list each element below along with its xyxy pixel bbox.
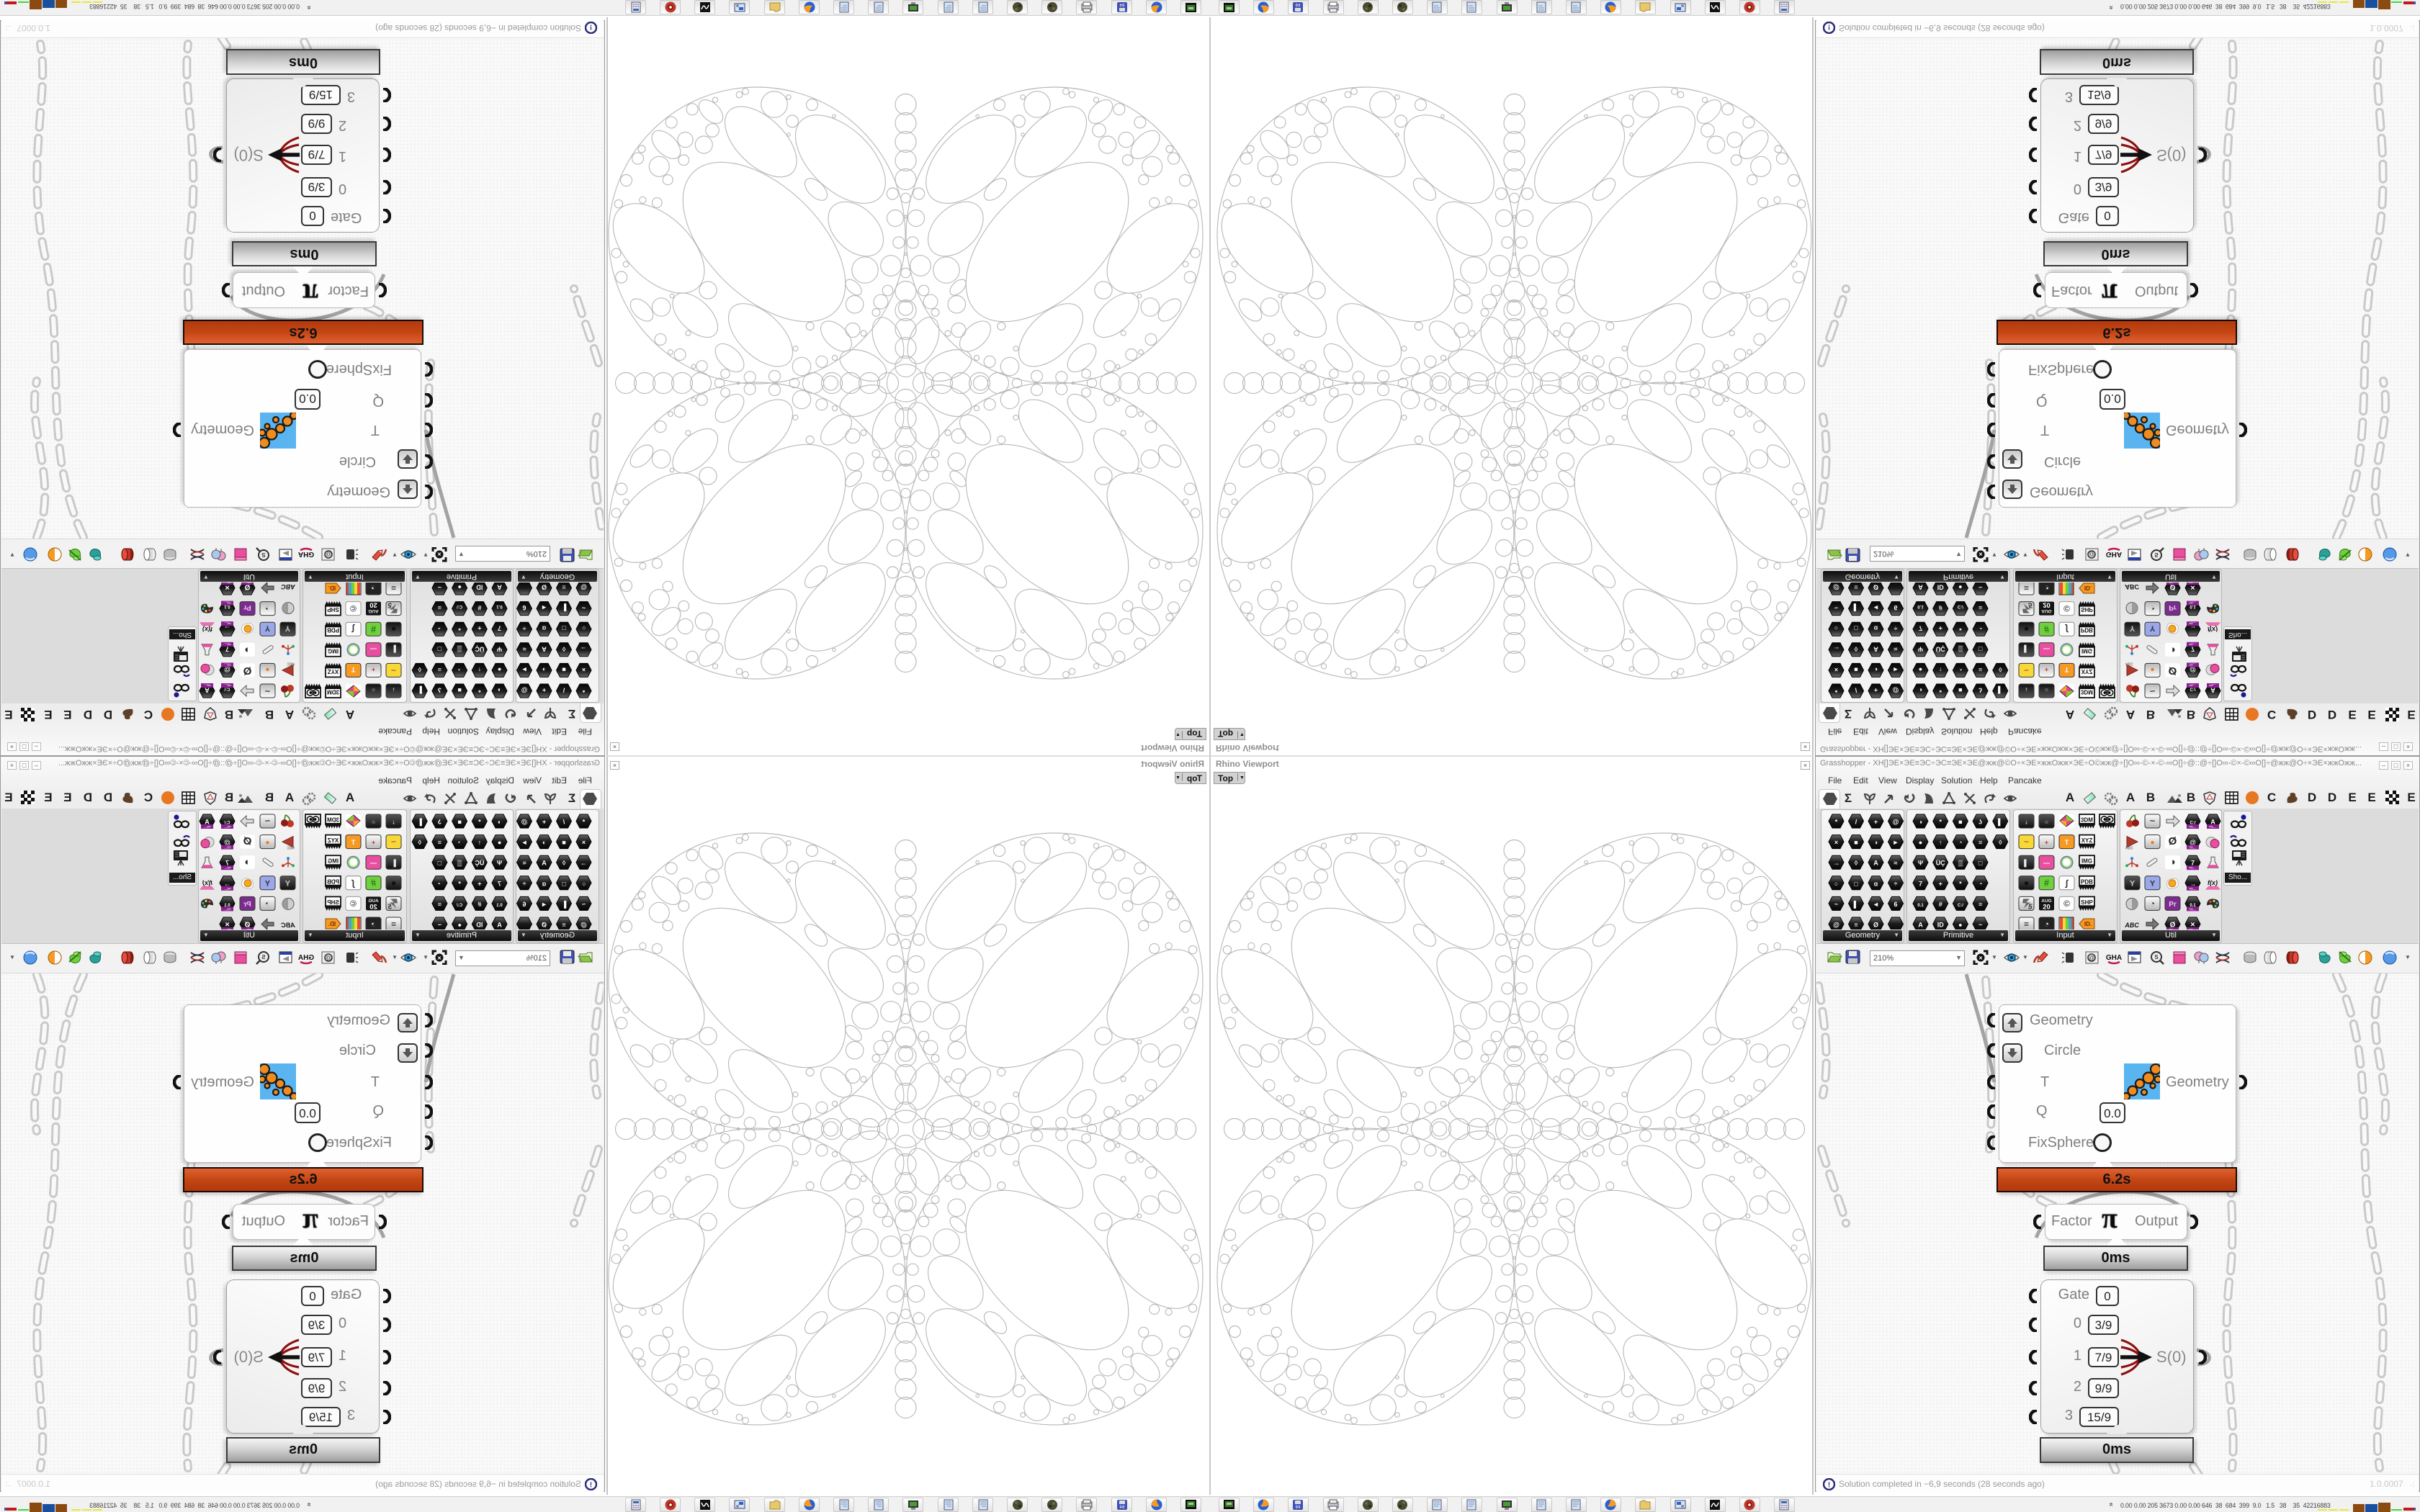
- svg-text:A: A: [1873, 860, 1878, 867]
- svg-text:□: □: [1854, 625, 1858, 632]
- svg-text:GHA: GHA: [2106, 550, 2122, 558]
- svg-text:0.1: 0.1: [1917, 904, 1924, 908]
- svg-text:Ø: Ø: [243, 835, 251, 847]
- svg-text:Ψ: Ψ: [497, 645, 502, 652]
- svg-text:3DM: 3DM: [2081, 817, 2093, 824]
- svg-text:▌: ▌: [391, 644, 395, 653]
- svg-text:=x...: =x...: [244, 928, 251, 930]
- svg-text:—: —: [370, 645, 377, 652]
- svg-text:◑: ◑: [1919, 819, 1922, 826]
- svg-text:~: ~: [1978, 584, 1982, 591]
- svg-text:◄: ◄: [1873, 604, 1879, 611]
- svg-text:~: ~: [2024, 665, 2029, 675]
- svg-text:PDB: PDB: [327, 627, 339, 634]
- svg-text:▌: ▌: [2024, 859, 2028, 868]
- svg-text:÷: ÷: [522, 880, 526, 887]
- svg-text:64: 64: [1296, 2, 1301, 6]
- svg-text:=x...: =x...: [2189, 621, 2196, 625]
- svg-text:◑: ◑: [244, 856, 250, 868]
- svg-text:Y: Y: [264, 879, 270, 888]
- svg-text:©: ©: [350, 603, 357, 613]
- svg-text:#: #: [2044, 624, 2050, 635]
- svg-text:*: *: [478, 687, 481, 694]
- svg-text:Ø: Ø: [542, 922, 547, 929]
- svg-text:~: ~: [391, 837, 396, 847]
- svg-text:ʖ: ʖ: [438, 687, 442, 694]
- svg-text:5: 5: [2028, 903, 2033, 911]
- svg-text:=x...: =x...: [224, 621, 231, 625]
- svg-text:T: T: [2065, 839, 2069, 846]
- svg-text:S: S: [2154, 954, 2159, 960]
- svg-text:Pr: Pr: [243, 901, 251, 909]
- svg-text:□: □: [1978, 860, 1983, 867]
- svg-text:►: ►: [521, 666, 528, 673]
- svg-text:6: 6: [522, 604, 526, 611]
- svg-text:A: A: [1918, 584, 1923, 591]
- svg-text:≡: ≡: [562, 922, 565, 929]
- svg-text:SHP: SHP: [327, 606, 339, 613]
- svg-text:→: →: [581, 645, 587, 652]
- svg-text:◔: ◔: [457, 839, 461, 846]
- svg-text:○: ○: [582, 625, 586, 632]
- svg-text:●: ●: [498, 839, 501, 846]
- svg-text:!: !: [1828, 23, 1830, 31]
- svg-text:C:/: C:/: [1958, 604, 1963, 608]
- svg-text:=x...: =x...: [224, 907, 231, 912]
- svg-text:■: ■: [2045, 687, 2048, 694]
- svg-text:@: @: [1893, 687, 1899, 694]
- svg-text:◔: ◔: [371, 583, 376, 593]
- svg-text:■: ■: [1854, 666, 1857, 673]
- svg-text:PDB: PDB: [327, 878, 339, 885]
- svg-text:ÜÇ: ÜÇ: [475, 645, 484, 652]
- svg-text:◑: ◑: [2169, 856, 2175, 868]
- svg-text:0.1: 0.1: [496, 604, 503, 608]
- svg-text:@: @: [326, 955, 331, 961]
- svg-text:Y: Y: [284, 879, 290, 888]
- svg-text:~: ~: [264, 686, 270, 697]
- svg-text:=x...: =x...: [2189, 825, 2196, 829]
- svg-text:+: +: [542, 687, 546, 694]
- svg-text:f(x): f(x): [2208, 626, 2218, 633]
- svg-text:▌: ▌: [2024, 644, 2028, 653]
- svg-text:Y: Y: [2130, 879, 2136, 888]
- svg-text:=x...: =x...: [2169, 582, 2176, 584]
- svg-text:►: ►: [521, 839, 528, 846]
- svg-text:×: ×: [1834, 839, 1838, 846]
- svg-text:≈: ≈: [522, 860, 526, 867]
- svg-text:□: □: [437, 645, 442, 652]
- svg-text:@: @: [2089, 955, 2094, 961]
- svg-text:→: →: [224, 625, 230, 632]
- svg-text:Ø: Ø: [1873, 584, 1878, 591]
- svg-text:0.1: 0.1: [1917, 604, 1924, 608]
- svg-text:IMG: IMG: [2081, 647, 2092, 654]
- svg-text:ɑ: ɑ: [1874, 880, 1878, 887]
- svg-text:≡: ≡: [391, 919, 396, 930]
- svg-text:~: ~: [1834, 901, 1838, 908]
- svg-text:Ø: Ø: [243, 665, 251, 677]
- svg-text:*: *: [582, 819, 585, 826]
- svg-text:=x...: =x...: [224, 642, 231, 646]
- svg-text:@: @: [224, 666, 230, 673]
- svg-text:=x...: =x...: [224, 825, 231, 829]
- svg-text:/: /: [563, 819, 565, 826]
- svg-text:7: 7: [1919, 625, 1922, 632]
- svg-text:64: 64: [1296, 1506, 1301, 1510]
- svg-text:=x...: =x...: [224, 662, 231, 666]
- svg-text:T: T: [351, 839, 355, 846]
- svg-text:▒: ▒: [1958, 860, 1963, 868]
- svg-text:◔: ◔: [265, 899, 270, 909]
- svg-text:~: ~: [582, 604, 586, 611]
- svg-text:◄: ◄: [1873, 901, 1879, 908]
- svg-text:□: □: [1854, 880, 1858, 887]
- svg-text:Pr: Pr: [243, 603, 251, 611]
- svg-text:Y: Y: [2150, 624, 2156, 633]
- svg-text:ɑ: ɑ: [542, 625, 547, 632]
- svg-text:#: #: [1939, 604, 1942, 611]
- svg-text:+: +: [2045, 839, 2048, 846]
- svg-text:●: ●: [1919, 666, 1922, 673]
- svg-text:≡: ≡: [438, 901, 442, 908]
- svg-text:PDB: PDB: [2081, 627, 2093, 634]
- svg-text:◔: ◔: [2044, 919, 2049, 930]
- svg-text:*: *: [1959, 625, 1962, 632]
- svg-text:©: ©: [2063, 603, 2070, 613]
- svg-text:■: ■: [562, 839, 565, 846]
- svg-text:=x...: =x...: [244, 582, 251, 584]
- svg-text:×: ×: [582, 666, 586, 673]
- svg-text:@: @: [1833, 922, 1839, 929]
- svg-text:64: 64: [1119, 1506, 1124, 1510]
- svg-text:●: ●: [457, 922, 461, 929]
- svg-text:◑: ◑: [2169, 644, 2175, 656]
- svg-text:©: ©: [2063, 899, 2070, 909]
- svg-text:◑: ◑: [498, 819, 501, 826]
- svg-text:@: @: [224, 839, 230, 846]
- svg-text:ID: ID: [1937, 584, 1945, 591]
- svg-text:@: @: [581, 584, 587, 591]
- svg-text:=x...: =x...: [204, 683, 211, 687]
- svg-text:~: ~: [582, 901, 586, 908]
- svg-text:—: —: [2043, 860, 2050, 867]
- svg-text:=x...: =x...: [2189, 582, 2196, 584]
- svg-text:~: ~: [1834, 604, 1838, 611]
- svg-text:■: ■: [562, 666, 565, 673]
- svg-text:×: ×: [437, 551, 441, 558]
- svg-text:≈: ≈: [1894, 645, 1898, 652]
- svg-text:◊: ◊: [562, 645, 565, 652]
- svg-text:5: 5: [2028, 601, 2033, 609]
- svg-text:#: #: [370, 877, 376, 888]
- svg-text:≈: ≈: [1894, 860, 1898, 867]
- svg-text:#: #: [370, 624, 376, 635]
- svg-text:◔: ◔: [2150, 603, 2155, 613]
- svg-text:▌: ▌: [418, 686, 422, 695]
- svg-text:+: +: [372, 839, 375, 846]
- svg-text:+: +: [1939, 880, 1942, 887]
- svg-text:~: ~: [438, 922, 442, 929]
- svg-text:▒: ▒: [1958, 644, 1963, 652]
- svg-text:+: +: [1874, 819, 1878, 826]
- svg-text:■: ■: [372, 687, 375, 694]
- svg-text:◑: ◑: [498, 687, 501, 694]
- svg-text:0.1: 0.1: [496, 904, 503, 908]
- svg-text:ɑ: ɑ: [542, 880, 547, 887]
- svg-text:=x...: =x...: [2189, 642, 2196, 646]
- svg-text:SHP: SHP: [2081, 606, 2093, 613]
- svg-text:~: ~: [2024, 837, 2029, 847]
- svg-text:↓: ↓: [392, 687, 395, 694]
- svg-text:=x...: =x...: [2189, 846, 2196, 850]
- svg-text:~: ~: [438, 584, 442, 591]
- svg-text:Y: Y: [2150, 879, 2156, 888]
- svg-text:▌: ▌: [1854, 900, 1858, 909]
- svg-text:→: →: [2190, 625, 2196, 632]
- svg-text:~: ~: [2150, 686, 2156, 697]
- svg-text:T: T: [2065, 666, 2069, 673]
- svg-text:6: 6: [522, 901, 526, 908]
- svg-text:Ψ: Ψ: [1918, 645, 1923, 652]
- svg-text:6: 6: [1894, 901, 1897, 908]
- svg-text:→: →: [1833, 645, 1839, 652]
- svg-text:=x...: =x...: [2209, 683, 2216, 687]
- svg-text:Σ: Σ: [1845, 707, 1852, 721]
- svg-text:Ø: Ø: [2169, 665, 2177, 677]
- svg-text:Pr: Pr: [2169, 901, 2177, 909]
- svg-text:↑: ↑: [478, 666, 482, 673]
- svg-text:=x...: =x...: [2189, 866, 2196, 870]
- svg-text:S: S: [261, 954, 266, 960]
- svg-text:S: S: [2154, 552, 2159, 558]
- svg-text:ABC: ABC: [2124, 583, 2139, 590]
- svg-text:◔: ◔: [438, 625, 442, 632]
- svg-text:◔: ◔: [2044, 583, 2049, 593]
- svg-text:T: T: [351, 666, 355, 673]
- svg-text:▌: ▌: [1854, 603, 1858, 612]
- svg-text:+: +: [372, 666, 375, 673]
- svg-text:●: ●: [1958, 922, 1962, 929]
- svg-text:●: ●: [1919, 839, 1922, 846]
- svg-text:7: 7: [498, 625, 501, 632]
- svg-text:*: *: [1835, 687, 1838, 694]
- svg-text:■: ■: [1958, 687, 1962, 694]
- svg-text:■: ■: [1854, 839, 1857, 846]
- svg-text:@: @: [2089, 551, 2094, 557]
- svg-text:3DM: 3DM: [327, 817, 339, 824]
- svg-text:5: 5: [387, 601, 392, 609]
- svg-text:◄: ◄: [541, 901, 547, 908]
- svg-text:C:/: C:/: [1958, 904, 1963, 908]
- svg-text:▌: ▌: [391, 859, 395, 868]
- svg-text:ABC: ABC: [281, 922, 296, 929]
- svg-text:▌: ▌: [1998, 818, 2002, 827]
- svg-text:/: /: [563, 687, 565, 694]
- svg-text:≡: ≡: [391, 583, 396, 593]
- svg-text:≡: ≡: [562, 584, 565, 591]
- svg-text:=x...: =x...: [2189, 928, 2196, 930]
- svg-text:÷: ÷: [522, 625, 526, 632]
- svg-text:=x...: =x...: [204, 825, 211, 829]
- svg-text:≈: ≈: [522, 645, 526, 652]
- svg-text:■: ■: [457, 687, 461, 694]
- svg-text:◔: ◔: [371, 919, 376, 930]
- svg-text:f(x): f(x): [202, 626, 212, 633]
- svg-text:A: A: [1918, 922, 1923, 929]
- svg-text:□: □: [562, 625, 566, 632]
- svg-text:7: 7: [225, 860, 229, 867]
- svg-text:○: ○: [1834, 880, 1838, 887]
- svg-text:≡: ≡: [1978, 666, 1982, 673]
- svg-text:S: S: [261, 552, 266, 558]
- svg-text:20: 20: [369, 601, 377, 609]
- svg-text:ABC: ABC: [2124, 922, 2139, 929]
- svg-text:=x...: =x...: [2189, 907, 2196, 912]
- svg-text:IMG: IMG: [328, 858, 339, 865]
- svg-text:ID: ID: [476, 584, 483, 591]
- svg-text:ʖ: ʖ: [1978, 819, 1982, 826]
- svg-text:↑: ↑: [1939, 839, 1942, 846]
- svg-text:●: ●: [2024, 877, 2030, 888]
- svg-text:20: 20: [2043, 601, 2051, 609]
- svg-text:▌: ▌: [1998, 686, 2002, 695]
- svg-text:~: ~: [391, 665, 396, 675]
- svg-text:*: *: [458, 880, 461, 887]
- svg-text:ÜÇ: ÜÇ: [1936, 860, 1945, 867]
- svg-text:◔: ◔: [2150, 899, 2155, 909]
- svg-text:20: 20: [2043, 903, 2051, 911]
- svg-text:A: A: [497, 922, 502, 929]
- svg-text:=x...: =x...: [2189, 683, 2196, 687]
- svg-text:≡: ≡: [438, 666, 442, 673]
- svg-text:+: +: [478, 625, 481, 632]
- svg-text:*: *: [458, 625, 461, 632]
- svg-text:+: +: [1939, 625, 1942, 632]
- svg-text:ʖ: ʖ: [438, 819, 442, 826]
- svg-text:@: @: [1893, 819, 1899, 826]
- svg-text:+: +: [542, 819, 546, 826]
- svg-text:◔: ◔: [1978, 880, 1982, 887]
- svg-text:#: #: [478, 901, 481, 908]
- svg-text:■: ■: [457, 819, 461, 826]
- svg-text:◑: ◑: [244, 644, 250, 656]
- svg-text:Ø: Ø: [1873, 922, 1878, 929]
- svg-text:=x...: =x...: [2189, 662, 2196, 666]
- svg-text:×: ×: [1978, 551, 1982, 558]
- svg-text:◑: ◑: [1919, 687, 1922, 694]
- svg-text:◊: ◊: [1855, 860, 1858, 867]
- svg-text:◊: ◊: [418, 666, 421, 673]
- svg-text:64: 64: [1119, 2, 1124, 6]
- svg-text:■: ■: [2045, 819, 2048, 826]
- svg-text:▒: ▒: [457, 860, 462, 868]
- svg-text:◔: ◔: [1958, 839, 1962, 846]
- svg-text:XYZ: XYZ: [2081, 837, 2093, 844]
- svg-text:↑: ↑: [1939, 666, 1942, 673]
- svg-text:!: !: [590, 23, 592, 31]
- svg-text:÷: ÷: [1894, 880, 1898, 887]
- svg-text:GHA: GHA: [2106, 954, 2122, 962]
- svg-text:~: ~: [264, 816, 270, 827]
- svg-text:≡: ≡: [438, 604, 442, 611]
- svg-text:=x...: =x...: [2209, 825, 2216, 829]
- svg-text:↓: ↓: [2025, 819, 2028, 826]
- svg-text:□: □: [562, 880, 566, 887]
- svg-text:=x...: =x...: [224, 928, 231, 930]
- svg-text:*: *: [478, 819, 481, 826]
- svg-text:≡: ≡: [1854, 922, 1857, 929]
- svg-text:ID: ID: [476, 922, 483, 929]
- svg-text:×: ×: [1978, 955, 1982, 962]
- svg-text:@: @: [326, 551, 331, 557]
- svg-text:►: ►: [1893, 839, 1899, 846]
- svg-text:ID.: ID.: [2084, 585, 2092, 591]
- svg-text:Σ: Σ: [568, 707, 575, 721]
- svg-text:Y: Y: [264, 624, 270, 633]
- svg-text:=x...: =x...: [224, 600, 231, 605]
- svg-text:≡: ≡: [2024, 583, 2029, 593]
- svg-text:XYZ: XYZ: [328, 837, 339, 844]
- svg-text:=x...: =x...: [224, 846, 231, 850]
- svg-text:—: —: [370, 860, 377, 867]
- svg-text:C:/: C:/: [457, 604, 462, 608]
- svg-text:=x...: =x...: [224, 887, 231, 891]
- svg-text:◄: ◄: [541, 604, 547, 611]
- svg-text:Ψ: Ψ: [497, 860, 502, 867]
- svg-text:◔: ◔: [265, 603, 270, 613]
- svg-text:*: *: [1939, 819, 1942, 826]
- svg-text:XYZ: XYZ: [328, 668, 339, 675]
- svg-text:A: A: [542, 645, 547, 652]
- svg-text:×: ×: [437, 955, 441, 962]
- svg-text:7: 7: [498, 880, 501, 887]
- svg-text:≡: ≡: [1978, 901, 1982, 908]
- svg-text:f(x): f(x): [2208, 879, 2218, 886]
- svg-text:20: 20: [369, 903, 377, 911]
- svg-text:@: @: [1833, 584, 1839, 591]
- svg-text:=x...: =x...: [224, 866, 231, 870]
- svg-text:↓: ↓: [392, 819, 395, 826]
- svg-text:@: @: [521, 819, 527, 826]
- svg-text:≡: ≡: [438, 839, 442, 846]
- svg-text:Y: Y: [284, 624, 290, 633]
- svg-text:Ø: Ø: [2169, 835, 2177, 847]
- svg-text:□: □: [437, 860, 442, 867]
- svg-text:=x...: =x...: [2169, 928, 2176, 930]
- svg-text:↑: ↑: [478, 839, 482, 846]
- svg-text:◔: ◔: [457, 666, 461, 673]
- svg-text:+: +: [2045, 666, 2048, 673]
- svg-text:GHA: GHA: [298, 954, 314, 962]
- svg-text:A: A: [542, 860, 547, 867]
- svg-text:©: ©: [350, 899, 357, 909]
- svg-text:●: ●: [498, 666, 501, 673]
- svg-text:▌: ▌: [418, 818, 422, 827]
- svg-text:PDB: PDB: [2081, 878, 2093, 885]
- svg-text:○: ○: [1834, 625, 1838, 632]
- svg-text:■: ■: [372, 819, 375, 826]
- svg-text:▌: ▌: [562, 900, 566, 909]
- svg-text:ʖ: ʖ: [1978, 687, 1982, 694]
- svg-text:◊: ◊: [1855, 645, 1858, 652]
- svg-text:→: →: [1833, 860, 1839, 867]
- svg-text:↓: ↓: [2025, 687, 2028, 694]
- svg-text:÷: ÷: [1894, 625, 1898, 632]
- svg-text:#: #: [1939, 901, 1942, 908]
- svg-text:Y: Y: [2130, 624, 2136, 633]
- svg-text:◑: ◑: [542, 666, 546, 673]
